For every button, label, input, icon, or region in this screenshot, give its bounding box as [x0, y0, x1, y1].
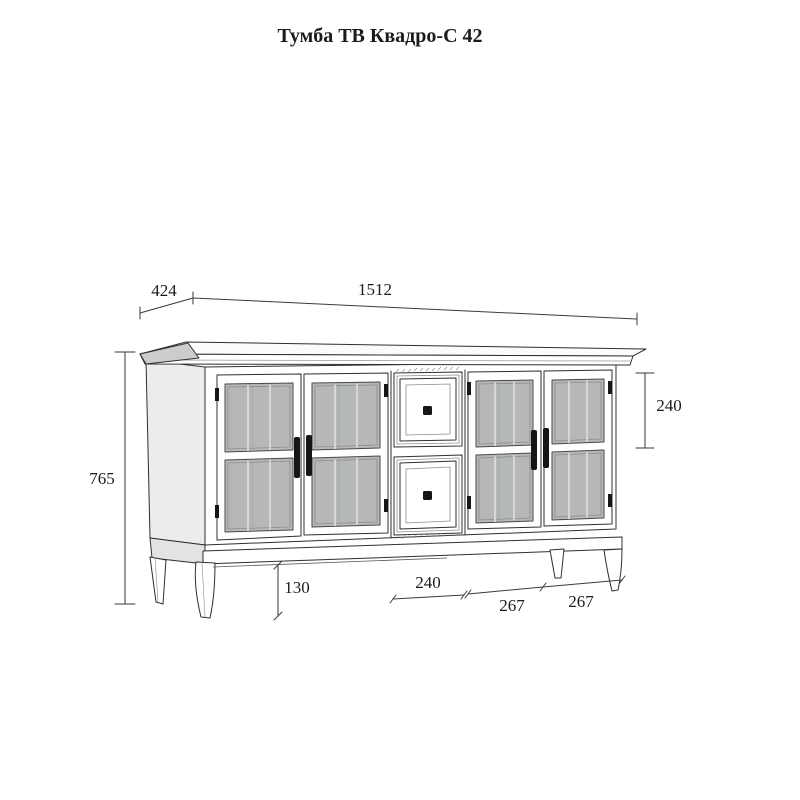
- dim-top-drawer-height: 240: [636, 373, 682, 448]
- dim-door-width-b-label: 267: [568, 592, 594, 611]
- glass-door-3: [468, 371, 541, 529]
- glass-door-2: [304, 373, 388, 535]
- door-3-lower-glass: [476, 453, 533, 523]
- drawing-title: Тумба ТВ Квадро-С 42: [277, 25, 482, 47]
- door-4-handle: [543, 428, 549, 468]
- hinge-icon: [215, 388, 219, 401]
- dim-depth: 424: [140, 281, 193, 319]
- drawer-2-knob: [423, 491, 432, 500]
- front-left-leg: [195, 562, 215, 618]
- dim-door-width-b: 267: [543, 576, 625, 611]
- door-2-handle: [306, 435, 312, 476]
- dim-width: 1512: [193, 280, 637, 325]
- dim-drawer-width-label: 240: [415, 573, 441, 592]
- crown-front-band: [140, 354, 633, 365]
- drawer-1: [394, 372, 462, 447]
- dim-leg-height: 130: [213, 558, 447, 620]
- glass-door-1: [217, 374, 301, 540]
- dim-top-drawer-height-label: 240: [656, 396, 682, 415]
- hinge-icon: [215, 505, 219, 518]
- door-4-upper-glass: [552, 379, 604, 444]
- drawer-1-knob: [423, 406, 432, 415]
- drawer-2: [394, 455, 462, 535]
- hinge-icon: [467, 496, 471, 509]
- dim-door-width-a: 267: [465, 583, 546, 615]
- dim-height-label: 765: [89, 469, 115, 488]
- dim-door-width-a-label: 267: [499, 596, 525, 615]
- door-4-lower-glass: [552, 450, 604, 520]
- glass-door-4: [544, 370, 612, 526]
- dim-drawer-width: 240: [390, 573, 467, 603]
- base-assembly: [150, 537, 622, 618]
- hinge-icon: [608, 381, 612, 394]
- dim-width-label: 1512: [358, 280, 392, 299]
- tv-stand-drawing: [140, 342, 646, 618]
- hinge-icon: [384, 384, 388, 397]
- door-3-handle: [531, 430, 537, 470]
- crown-molding: [140, 342, 646, 365]
- hinge-icon: [467, 382, 471, 395]
- side-panel: [146, 360, 205, 545]
- drawing-page: Тумба ТВ Квадро-С 42: [0, 0, 800, 800]
- hinge-icon: [608, 494, 612, 507]
- door-1-handle: [294, 437, 300, 478]
- door-2-upper-glass: [312, 382, 380, 450]
- door-3-upper-glass: [476, 380, 533, 447]
- front-right-leg: [604, 549, 622, 591]
- back-right-leg: [550, 549, 564, 578]
- furniture-dimension-drawing: Тумба ТВ Квадро-С 42: [0, 0, 800, 800]
- door-1-lower-glass: [225, 458, 293, 532]
- dim-height: 765: [89, 352, 135, 604]
- dim-depth-label: 424: [151, 281, 177, 300]
- door-2-lower-glass: [312, 456, 380, 527]
- door-1-upper-glass: [225, 383, 293, 452]
- hinge-icon: [384, 499, 388, 512]
- dim-leg-height-label: 130: [284, 578, 310, 597]
